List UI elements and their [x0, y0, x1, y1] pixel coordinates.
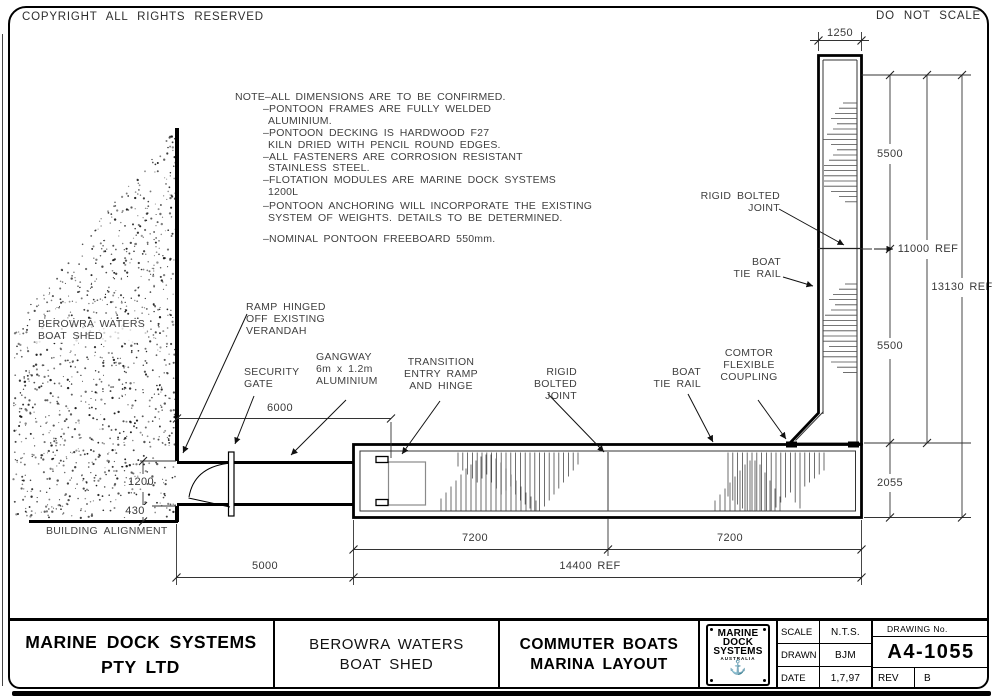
dim-7200-right: 7200 [706, 532, 754, 544]
revision-row: REV B [873, 667, 989, 689]
ramp-hinge-top [376, 457, 388, 463]
note-line: ALUMINIUM. [235, 116, 592, 128]
title-block-title-cell: COMMUTER BOATS MARINA LAYOUT [498, 621, 698, 689]
scale-value: N.T.S. [820, 621, 871, 643]
note-line: –PONTOON DECKING IS HARDWOOD F27 [235, 128, 592, 140]
date-label: DATE [778, 667, 820, 689]
anchor-icon: ⚓ [708, 661, 768, 674]
general-notes: NOTE–ALL DIMENSIONS ARE TO BE CONFIRMED.… [235, 92, 592, 246]
drawn-label: DRAWN [778, 644, 820, 666]
transition-ramp [389, 462, 426, 505]
gate-swing-arc [189, 464, 227, 498]
project-name: BEROWRA WATERS BOAT SHED [309, 635, 464, 675]
label-boat-tie-rail-main: BOAT TIE RAIL [640, 367, 701, 391]
dim-5500-bottom: 5500 [864, 340, 916, 352]
rev-label: REV [873, 668, 915, 689]
copyright-notice: COPYRIGHT ALL RIGHTS RESERVED [22, 11, 264, 23]
dim-14400-ref: 14400 REF [547, 560, 633, 572]
label-boat-shed: BEROWRA WATERS BOAT SHED [36, 319, 147, 343]
label-transition-ramp: TRANSITION ENTRY RAMP AND HINGE [399, 357, 483, 392]
label-comtor-coupling: COMTOR FLEXIBLE COUPLING [716, 348, 782, 383]
logo-screw-icon [763, 679, 766, 682]
leader-boat-tie-v [783, 277, 813, 286]
coupling-block-left [786, 442, 797, 448]
coupling-block-right [848, 442, 859, 448]
label-rigid-bolted-joint-north: RIGID BOLTED JOINT [695, 191, 780, 215]
note-line: KILN DRIED WITH PENCIL ROUND EDGES. [235, 140, 592, 152]
drawing-sheet: COPYRIGHT ALL RIGHTS RESERVED DO NOT SCA… [0, 0, 1000, 699]
company-name: MARINE DOCK SYSTEMS PTY LTD [24, 630, 257, 680]
label-security-gate: SECURITY GATE [244, 367, 300, 391]
dim-11000-ref: 11000 REF [897, 243, 959, 255]
dim-430: 430 [118, 505, 152, 517]
label-boat-tie-rail-north: BOAT TIE RAIL [700, 257, 781, 281]
drawing-title: COMMUTER BOATS MARINA LAYOUT [520, 635, 679, 675]
title-block-project-cell: BEROWRA WATERS BOAT SHED [273, 621, 498, 689]
dim-5000: 5000 [241, 560, 289, 572]
scale-label: SCALE [778, 621, 820, 643]
label-rigid-bolted-joint-main: RIGID BOLTED JOINT [505, 367, 577, 402]
scale-row: SCALE N.T.S. [778, 621, 871, 643]
dim-1200: 1200 [121, 476, 161, 488]
logo-text-systems: SYSTEMS [708, 647, 768, 656]
leader-security-gate [235, 396, 254, 444]
leader-boat-tie-h [688, 394, 713, 442]
dim-7200-left: 7200 [451, 532, 499, 544]
title-block-meta-table: SCALE N.T.S. DRAWN BJM DATE 1,7,97 [776, 621, 871, 689]
label-ramp-hinged: RAMP HINGED OFF EXISTING VERANDAH [246, 302, 326, 337]
date-row: DATE 1,7,97 [778, 666, 871, 689]
logo-screw-icon [710, 679, 713, 682]
label-gangway: GANGWAY 6m x 1.2m ALUMINIUM [316, 352, 378, 387]
company-logo: MARINE DOCK SYSTEMS AUSTRALIA ⚓ [706, 624, 770, 686]
dim-1250: 1250 [815, 27, 865, 39]
title-block-logo-cell: MARINE DOCK SYSTEMS AUSTRALIA ⚓ [698, 621, 776, 689]
note-line: 1200L [235, 187, 592, 199]
drawing-no-value: A4-1055 [873, 637, 989, 667]
title-block: MARINE DOCK SYSTEMS PTY LTD BEROWRA WATE… [8, 618, 989, 689]
dim-5500-top: 5500 [864, 148, 916, 160]
drawn-value: BJM [820, 644, 871, 666]
leader-ramp-hinged [183, 314, 247, 453]
title-block-company-cell: MARINE DOCK SYSTEMS PTY LTD [8, 621, 273, 689]
dim-13130-ref: 13130 REF [930, 281, 994, 293]
dim-2055: 2055 [864, 477, 916, 489]
date-value: 1,7,97 [820, 667, 871, 689]
note-line: SYSTEM OF WEIGHTS. DETAILS TO BE DETERMI… [235, 213, 592, 225]
do-not-scale-note: DO NOT SCALE [876, 10, 981, 22]
leader-comtor [758, 400, 786, 439]
dim-6000: 6000 [255, 402, 305, 414]
drawn-row: DRAWN BJM [778, 643, 871, 666]
drawing-no-label: DRAWING No. [873, 621, 989, 637]
rev-value: B [915, 668, 989, 689]
note-line: –NOMINAL PONTOON FREEBOARD 550mm. [235, 234, 592, 246]
ramp-hinge-bottom [376, 500, 388, 506]
label-building-alignment: BUILDING ALIGNMENT [46, 526, 168, 538]
title-block-drawing-no-cell: DRAWING No. A4-1055 REV B [871, 621, 989, 689]
